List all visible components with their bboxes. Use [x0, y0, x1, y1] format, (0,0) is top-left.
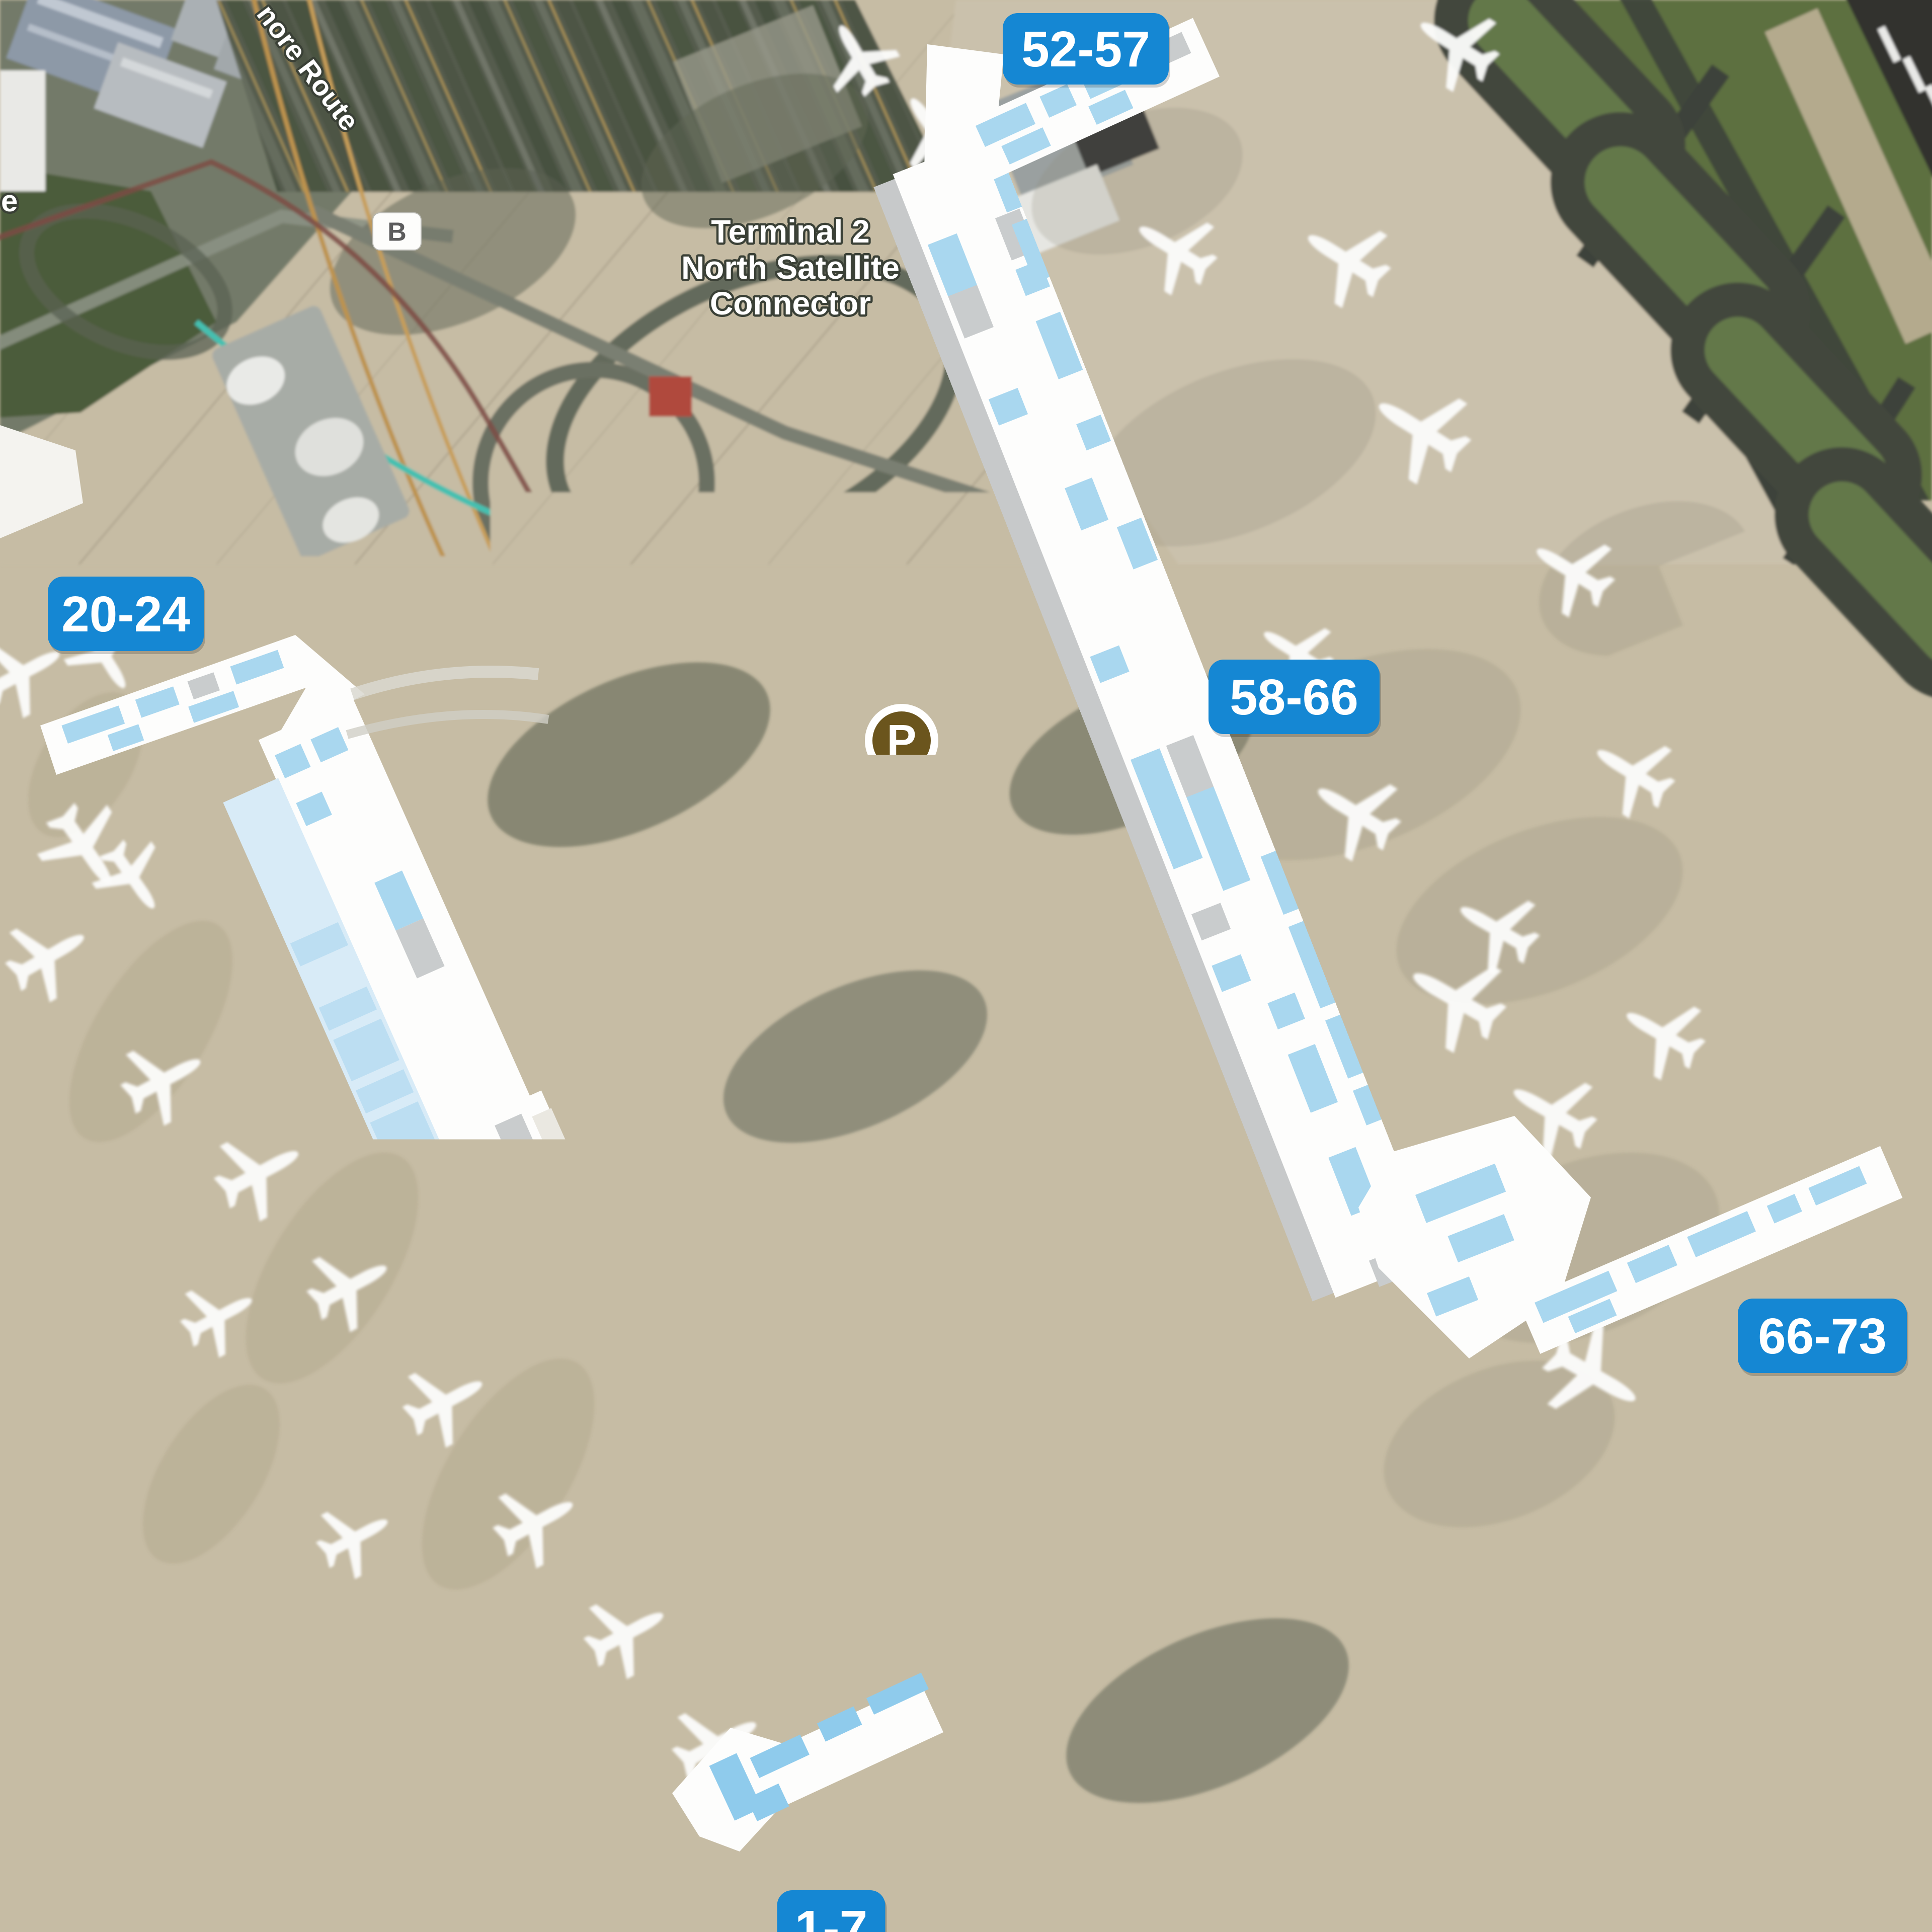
svg-text:P: P — [1229, 1291, 1259, 1341]
svg-text:P: P — [887, 715, 917, 765]
svg-text:Terminal: Terminal — [768, 1163, 871, 1191]
svg-text:52-57: 52-57 — [1021, 21, 1150, 77]
svg-text:P: P — [1116, 1101, 1146, 1151]
svg-text:B17: B17 — [806, 975, 850, 1001]
svg-text:Airport: Airport — [11, 1783, 118, 1819]
svg-text:e: e — [1, 184, 18, 218]
svg-text:Terminal 2: Terminal 2 — [1060, 844, 1278, 894]
svg-text:national: national — [0, 1259, 119, 1295]
svg-text:B: B — [1017, 1258, 1036, 1287]
svg-text:rt: rt — [0, 1313, 19, 1349]
svg-text:1-7: 1-7 — [795, 1900, 868, 1932]
svg-text:66-73: 66-73 — [1758, 1308, 1887, 1364]
svg-text:P: P — [591, 899, 620, 949]
svg-text:Terminal 2: Terminal 2 — [711, 213, 869, 250]
svg-text:Domestic: Domestic — [762, 1130, 875, 1158]
svg-text:20-24: 20-24 — [61, 586, 190, 642]
svg-text:B: B — [1315, 1775, 1334, 1804]
svg-text:Haneda Airport: Haneda Airport — [729, 1096, 910, 1124]
svg-text:P3: P3 — [917, 824, 942, 848]
svg-text:58-66: 58-66 — [1230, 669, 1358, 726]
svg-text:357: 357 — [1229, 1776, 1267, 1802]
svg-text:Connector: Connector — [710, 285, 871, 321]
svg-text:8-14: 8-14 — [447, 1439, 548, 1495]
svg-text:357: 357 — [927, 1248, 965, 1274]
svg-text:Terminal 2: Terminal 2 — [1081, 961, 1195, 987]
svg-text:Terminal 1: Terminal 1 — [350, 1258, 568, 1308]
svg-text:Haneda Airp: Haneda Airp — [1058, 929, 1193, 955]
svg-text:B: B — [387, 218, 407, 247]
svg-text:North Satellite: North Satellite — [681, 250, 900, 286]
svg-text:P1: P1 — [858, 1420, 884, 1443]
svg-text:15-19: 15-19 — [133, 876, 262, 933]
svg-text:B: B — [692, 769, 711, 798]
svg-text:P: P — [826, 1301, 855, 1351]
svg-text:International: International — [11, 1729, 204, 1765]
